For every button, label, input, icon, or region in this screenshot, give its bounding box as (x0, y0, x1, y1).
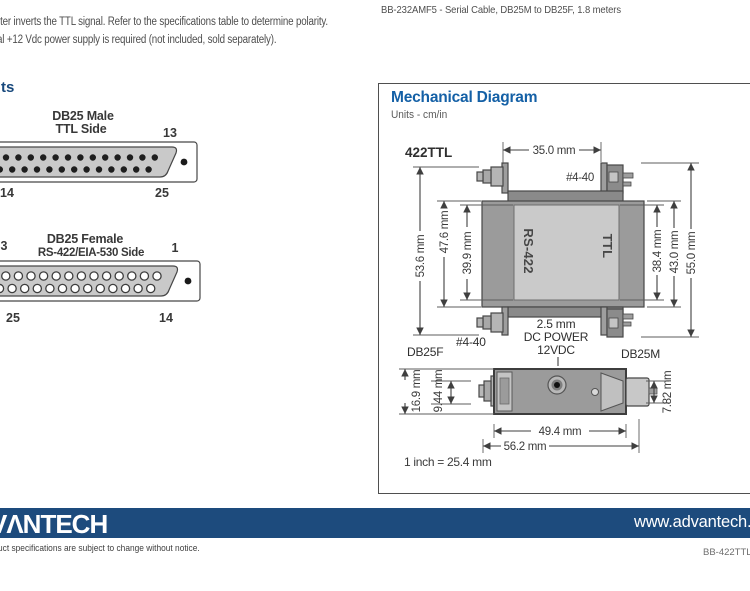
scale-note: 1 inch = 25.4 mm (404, 455, 492, 469)
svg-text:38.4 mm: 38.4 mm (652, 230, 664, 273)
female-pin25-label: 25 (6, 311, 20, 325)
pin (46, 166, 52, 172)
website-link[interactable]: www.advantech. (634, 513, 750, 532)
pin (8, 284, 16, 292)
svg-text:47.6 mm: 47.6 mm (439, 211, 451, 254)
intro-paragraph-line2: al +12 Vdc power supply is required (not… (0, 31, 328, 49)
male-pin25-label: 25 (155, 186, 169, 200)
female-screw-hole (185, 278, 192, 285)
pin (52, 154, 58, 160)
ttl-side-label: TTL (600, 234, 615, 258)
side-view: 16.9 mm 9.44 mm 7.82 mm 49.4 mm (399, 369, 674, 469)
pin (127, 154, 133, 160)
pin (3, 154, 9, 160)
dc-power-label: 2.5 mm DC POWER 12VDC (524, 317, 589, 366)
svg-text:53.6 mm: 53.6 mm (415, 235, 427, 278)
bottom-left-thumbscrew (491, 313, 503, 332)
pin (139, 154, 145, 160)
pin (145, 166, 151, 172)
male-title-line2: TTL Side (56, 122, 107, 136)
svg-text:35.0 mm: 35.0 mm (533, 145, 576, 157)
pin (0, 284, 4, 292)
screw-label-bottom: #4-40 (456, 335, 486, 349)
dim-left-mid: 47.6 mm (437, 201, 481, 307)
svg-text:55.0 mm: 55.0 mm (686, 232, 698, 275)
pin (102, 154, 108, 160)
model-label: 422TTL (405, 145, 452, 160)
svg-text:7.82 mm: 7.82 mm (662, 371, 674, 414)
datasheet-page: { "header": { "paragraph_line1": "rter i… (0, 0, 750, 591)
pin (21, 166, 27, 172)
pin (27, 272, 35, 280)
svg-text:16.9 mm: 16.9 mm (411, 370, 423, 413)
pin (109, 284, 117, 292)
pin (52, 272, 60, 280)
female-title-line2: RS-422/EIA-530 Side (38, 247, 144, 259)
svg-text:2.5 mm: 2.5 mm (537, 317, 576, 331)
pin (128, 272, 136, 280)
pin (133, 166, 139, 172)
pin (21, 284, 29, 292)
pin (14, 272, 22, 280)
pin (77, 154, 83, 160)
top-left-thumbscrew (491, 167, 503, 186)
pin (2, 272, 10, 280)
dim-width-body: 49.4 mm (494, 424, 626, 438)
section-heading-fragment: ts (1, 79, 14, 96)
db25f-label: DB25F (407, 345, 443, 359)
pin (59, 166, 65, 172)
bottom-right-bracket (601, 307, 607, 335)
pin (153, 272, 161, 280)
male-insert (0, 147, 177, 177)
mechanical-diagram-box: Mechanical Diagram Units - cm/in 422TTL (378, 83, 750, 494)
svg-text:43.0 mm: 43.0 mm (669, 231, 681, 274)
pin (147, 284, 155, 292)
db25-male-connector: DB25 Male TTL Side 13 14 25 (0, 109, 197, 200)
pin (121, 284, 129, 292)
svg-text:49.4 mm: 49.4 mm (539, 426, 582, 438)
pin (96, 284, 104, 292)
pin (90, 272, 98, 280)
db25-female-connector: DB25 Female RS-422/EIA-530 Side 3 1 25 1… (0, 232, 200, 325)
female-pin1-label: 1 (172, 241, 179, 255)
pin (134, 284, 142, 292)
male-title-line1: DB25 Male (52, 109, 114, 123)
pin (28, 154, 34, 160)
disclaimer-text: uct specifications are subject to change… (0, 543, 200, 554)
female-pin14-label: 14 (159, 311, 173, 325)
intro-paragraph-line1: rter inverts the TTL signal. Refer to th… (0, 13, 328, 31)
rs422-side-label: RS-422 (521, 228, 536, 273)
top-right-bracket (601, 163, 607, 193)
svg-text:56.2 mm: 56.2 mm (504, 441, 547, 453)
screw-label-top: #4-40 (566, 172, 594, 184)
svg-text:9.44 mm: 9.44 mm (433, 370, 445, 413)
pin (40, 272, 48, 280)
dc-power-jack (548, 376, 566, 394)
side-db25m-block (626, 378, 649, 406)
side-screw-head (592, 389, 599, 396)
male-screw-hole (181, 159, 188, 166)
pin (108, 166, 114, 172)
pin (46, 284, 54, 292)
pin (140, 272, 148, 280)
female-title-line1: DB25 Female (47, 232, 124, 246)
male-pin13-label: 13 (163, 126, 177, 140)
pin (114, 154, 120, 160)
male-pin14-label: 14 (0, 186, 14, 200)
pin (83, 166, 89, 172)
female-pin13-label: 3 (1, 239, 8, 253)
pinout-drawings: DB25 Male TTL Side 13 14 25 DB25 Female … (0, 100, 210, 340)
pin (34, 166, 40, 172)
pin (71, 166, 77, 172)
top-connector-strip (508, 191, 623, 202)
pin (115, 272, 123, 280)
top-view: RS-422 TTL 35.0 mm #4-40 (407, 142, 699, 366)
svg-text:12VDC: 12VDC (537, 343, 575, 357)
pin (65, 272, 73, 280)
mechanical-drawing: 422TTL RS-422 TTL (379, 84, 750, 492)
pin (15, 154, 21, 160)
pin (90, 154, 96, 160)
dim-height-screw: 9.44 mm (431, 370, 471, 413)
pin (121, 166, 127, 172)
dim-width-top: 35.0 mm (503, 142, 601, 164)
svg-text:39.9 mm: 39.9 mm (462, 232, 474, 275)
pin (9, 166, 15, 172)
pin (96, 166, 102, 172)
pin (40, 154, 46, 160)
svg-text:DC POWER: DC POWER (524, 330, 589, 344)
cable-item: BB-232AMF5 - Serial Cable, DB25M to DB25… (381, 4, 621, 16)
pin (84, 284, 92, 292)
pin (77, 272, 85, 280)
pin (152, 154, 158, 160)
pin (103, 272, 111, 280)
pin (33, 284, 41, 292)
pin (71, 284, 79, 292)
advantech-logo: VΛNTECH (0, 509, 107, 540)
document-number: BB-422TTL_ (703, 547, 750, 558)
intro-paragraph: rter inverts the TTL signal. Refer to th… (0, 13, 386, 49)
pin (58, 284, 66, 292)
pin (65, 154, 71, 160)
db25m-label: DB25M (621, 347, 660, 361)
